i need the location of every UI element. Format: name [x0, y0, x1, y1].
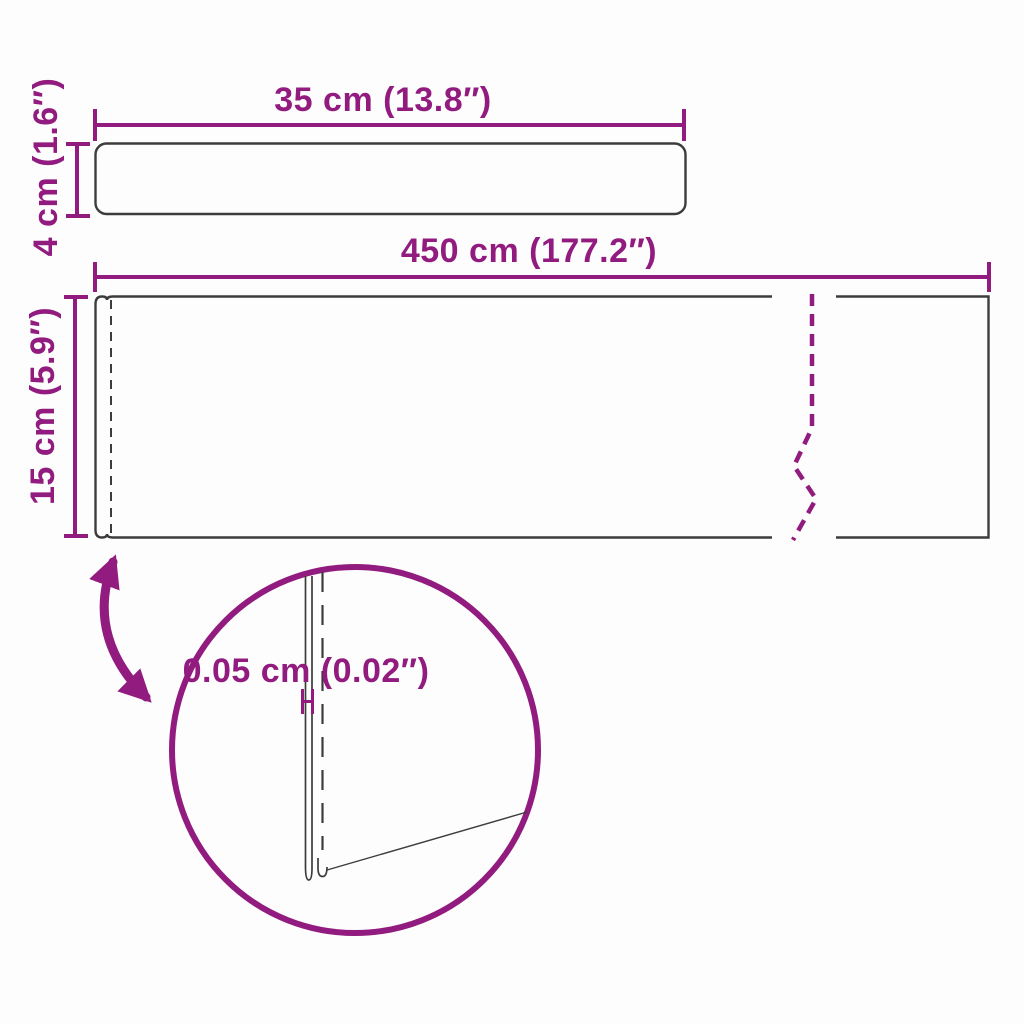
small-panel-height-label: 4 cm (1.6″) [29, 78, 63, 257]
large-panel-width-label: 450 cm (177.2″) [401, 234, 657, 268]
length-break-line [793, 294, 816, 540]
small-panel-width-label: 35 cm (13.8″) [274, 83, 491, 117]
dimension-diagram: 35 cm (13.8″) 4 cm (1.6″) 450 cm (177.2″… [0, 0, 1024, 1024]
zoom-circle [172, 567, 538, 933]
large-panel-outline-left [96, 297, 773, 538]
large-panel-height-dimension [64, 297, 88, 536]
large-panel-outline-right [836, 297, 989, 538]
zoom-callout-arrow [104, 562, 146, 697]
diagram-canvas [0, 0, 1024, 1024]
small-panel-height-dimension [66, 144, 90, 216]
large-panel-height-label: 15 cm (5.9″) [26, 307, 60, 505]
small-panel-outline [96, 144, 686, 215]
thickness-label: 0.05 cm (0.02″) [183, 654, 430, 688]
